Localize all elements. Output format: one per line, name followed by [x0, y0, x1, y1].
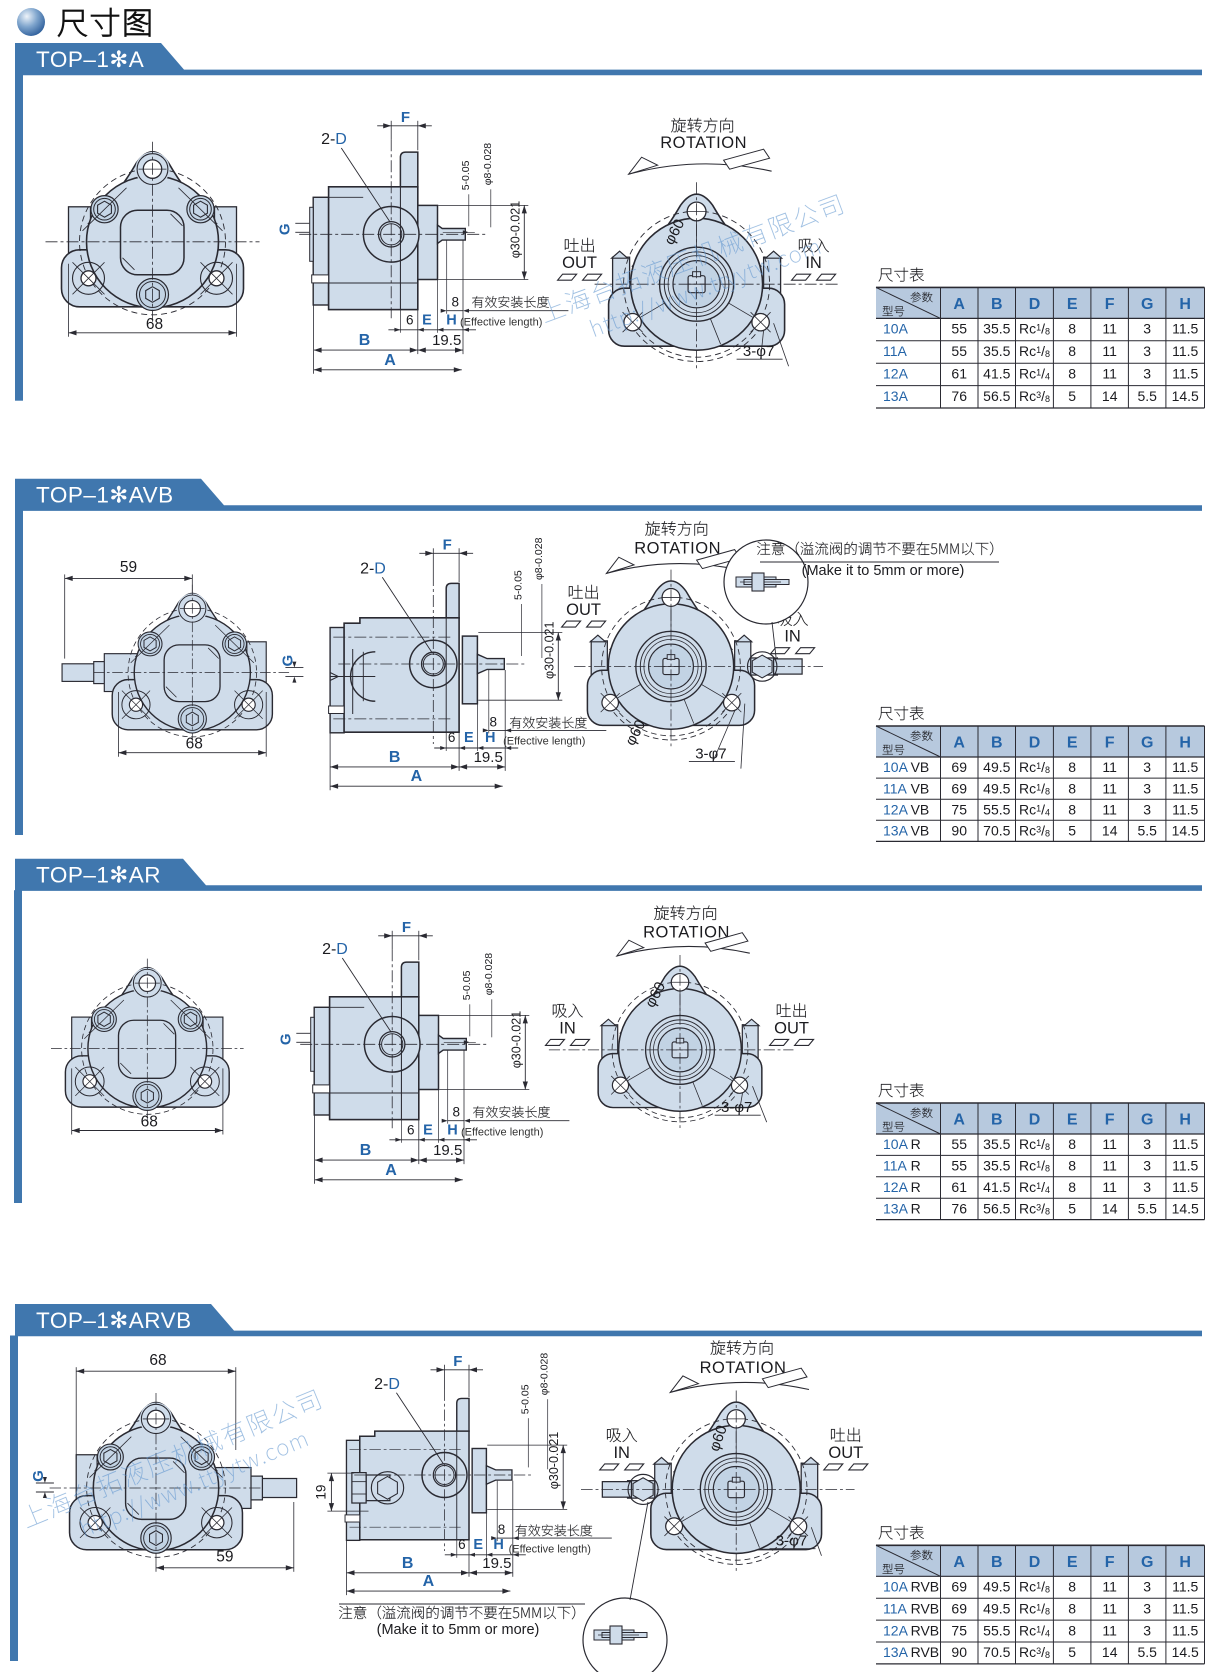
svg-text:3-φ7: 3-φ7 [743, 343, 774, 360]
svg-text:3: 3 [1143, 365, 1151, 381]
svg-text:ROTATION: ROTATION [643, 923, 730, 941]
svg-text:8: 8 [1068, 1600, 1076, 1616]
svg-text:70.5: 70.5 [983, 823, 1010, 839]
svg-text:A: A [953, 735, 965, 752]
svg-text:19.5: 19.5 [432, 332, 461, 349]
svg-text:D: D [1029, 1554, 1041, 1571]
svg-text:12A: 12A [883, 1179, 909, 1195]
svg-text:5.5: 5.5 [1137, 1644, 1157, 1660]
svg-text:2-: 2- [322, 941, 336, 958]
svg-text:76: 76 [951, 388, 967, 404]
svg-text:VB: VB [911, 823, 930, 839]
svg-text:6: 6 [458, 1537, 466, 1552]
svg-text:G: G [1141, 1554, 1153, 1571]
svg-text:Rc3/8: Rc3/8 [1019, 388, 1050, 404]
svg-text:φ8-0.028: φ8-0.028 [533, 537, 545, 580]
svg-text:6: 6 [407, 1122, 415, 1137]
svg-text:5-0.05: 5-0.05 [519, 1384, 531, 1414]
svg-text:Rc1/8: Rc1/8 [1019, 759, 1050, 775]
svg-text:14: 14 [1102, 1644, 1118, 1660]
svg-text:D: D [335, 131, 347, 148]
svg-text:(Effective length): (Effective length) [461, 1126, 543, 1138]
svg-text:12A: 12A [883, 801, 909, 817]
svg-text:5: 5 [1068, 1200, 1076, 1216]
svg-text:8: 8 [498, 1522, 506, 1537]
svg-text:11: 11 [1102, 343, 1117, 359]
svg-text:E: E [1067, 296, 1078, 313]
svg-text:35.5: 35.5 [983, 343, 1010, 359]
svg-text:55.5: 55.5 [983, 801, 1010, 817]
svg-text:H: H [447, 1122, 457, 1138]
svg-text:55: 55 [951, 1158, 967, 1174]
svg-text:11: 11 [1102, 1158, 1117, 1174]
svg-text:E: E [422, 312, 432, 328]
svg-text:OUT: OUT [774, 1019, 809, 1037]
svg-text:11.5: 11.5 [1172, 1622, 1198, 1638]
svg-text:68: 68 [149, 1352, 166, 1369]
svg-text:RVB: RVB [911, 1644, 940, 1660]
svg-text:5-0.05: 5-0.05 [513, 570, 525, 600]
svg-text:49.5: 49.5 [983, 759, 1010, 775]
svg-text:Rc1/8: Rc1/8 [1019, 343, 1050, 359]
svg-text:3-φ7: 3-φ7 [695, 746, 726, 763]
svg-text:61: 61 [951, 365, 967, 381]
svg-text:11A: 11A [883, 343, 908, 359]
svg-text:D: D [1029, 296, 1041, 313]
svg-text:OUT: OUT [828, 1444, 863, 1462]
svg-text:TOP–1✻A: TOP–1✻A [36, 47, 144, 72]
svg-text:10A: 10A [883, 321, 909, 337]
svg-text:F: F [402, 919, 411, 936]
svg-text:Rc1/4: Rc1/4 [1019, 801, 1050, 817]
svg-text:ROTATION: ROTATION [634, 540, 721, 558]
svg-text:(Make it to 5mm or more): (Make it to 5mm or more) [377, 1622, 540, 1638]
svg-text:11: 11 [1102, 1579, 1117, 1595]
svg-text:14.5: 14.5 [1172, 1644, 1199, 1660]
svg-text:(Make it to 5mm or more): (Make it to 5mm or more) [802, 563, 965, 579]
svg-text:B: B [991, 735, 1003, 752]
svg-text:ROTATION: ROTATION [700, 1359, 787, 1377]
svg-text:ROTATION: ROTATION [660, 134, 747, 152]
svg-text:2-: 2- [374, 1376, 388, 1393]
svg-text:70.5: 70.5 [983, 1644, 1010, 1660]
svg-text:IN: IN [805, 254, 822, 272]
svg-text:R: R [911, 1158, 921, 1174]
svg-text:R: R [911, 1200, 921, 1216]
svg-text:5-0.05: 5-0.05 [460, 160, 472, 190]
svg-text:14: 14 [1102, 388, 1118, 404]
svg-text:19.5: 19.5 [433, 1142, 462, 1159]
svg-text:11.5: 11.5 [1172, 1600, 1198, 1616]
svg-text:8: 8 [1068, 1136, 1076, 1152]
svg-text:TOP–1✻AR: TOP–1✻AR [36, 863, 161, 888]
svg-text:A: A [953, 1112, 965, 1129]
svg-text:OUT: OUT [562, 254, 597, 272]
svg-text:14: 14 [1102, 1200, 1118, 1216]
svg-text:Rc1/4: Rc1/4 [1019, 1622, 1050, 1638]
svg-text:H: H [1179, 296, 1191, 313]
svg-text:E: E [1067, 735, 1078, 752]
svg-text:55.5: 55.5 [983, 1622, 1010, 1638]
svg-text:11.5: 11.5 [1172, 1179, 1198, 1195]
svg-text:41.5: 41.5 [983, 1179, 1010, 1195]
svg-text:VB: VB [911, 801, 930, 817]
svg-text:B: B [402, 1555, 414, 1572]
svg-text:68: 68 [141, 1114, 158, 1131]
svg-text:D: D [1029, 735, 1041, 752]
svg-text:35.5: 35.5 [983, 1136, 1010, 1152]
svg-text:11.5: 11.5 [1172, 365, 1198, 381]
svg-text:Rc1/8: Rc1/8 [1019, 1600, 1050, 1616]
svg-text:11: 11 [1102, 1600, 1117, 1616]
svg-text:49.5: 49.5 [983, 780, 1010, 796]
svg-text:55: 55 [951, 321, 967, 337]
svg-text:3: 3 [1143, 1158, 1151, 1174]
svg-text:41.5: 41.5 [983, 365, 1010, 381]
svg-text:11: 11 [1102, 801, 1117, 817]
svg-text:B: B [389, 749, 401, 766]
svg-text:G: G [1141, 1112, 1153, 1129]
svg-text:φ30-0.021: φ30-0.021 [508, 201, 522, 259]
svg-text:56.5: 56.5 [983, 1200, 1010, 1216]
svg-text:3: 3 [1143, 1622, 1151, 1638]
svg-text:φ30-0.021: φ30-0.021 [542, 621, 556, 679]
svg-text:11.5: 11.5 [1172, 780, 1198, 796]
svg-text:2-: 2- [321, 131, 335, 148]
svg-text:E: E [1067, 1554, 1078, 1571]
svg-text:H: H [1179, 735, 1191, 752]
svg-text:35.5: 35.5 [983, 321, 1010, 337]
svg-text:10A: 10A [883, 1136, 909, 1152]
svg-text:5.5: 5.5 [1137, 388, 1157, 404]
svg-text:35.5: 35.5 [983, 1158, 1010, 1174]
svg-text:5: 5 [1068, 388, 1076, 404]
svg-text:φ8-0.028: φ8-0.028 [482, 143, 494, 186]
svg-text:Rc1/8: Rc1/8 [1019, 1579, 1050, 1595]
svg-text:IN: IN [559, 1019, 576, 1037]
svg-text:H: H [493, 1537, 503, 1553]
svg-text:Rc1/8: Rc1/8 [1019, 321, 1050, 337]
svg-text:11.5: 11.5 [1172, 1579, 1198, 1595]
svg-text:Rc1/4: Rc1/4 [1019, 365, 1050, 381]
svg-text:10A: 10A [883, 759, 909, 775]
svg-text:8: 8 [1068, 365, 1076, 381]
svg-text:TOP–1✻ARVB: TOP–1✻ARVB [36, 1308, 192, 1333]
svg-text:11.5: 11.5 [1172, 801, 1198, 817]
svg-text:G: G [276, 223, 293, 235]
svg-text:D: D [336, 941, 348, 958]
svg-text:A: A [423, 1573, 435, 1590]
svg-text:11.5: 11.5 [1172, 1136, 1198, 1152]
svg-text:8: 8 [1068, 1179, 1076, 1195]
svg-text:3: 3 [1143, 1136, 1151, 1152]
svg-text:55: 55 [951, 1136, 967, 1152]
svg-text:E: E [473, 1537, 483, 1553]
svg-text:G: G [1141, 735, 1153, 752]
svg-text:8: 8 [452, 1105, 460, 1120]
svg-text:8: 8 [1068, 780, 1076, 796]
svg-text:B: B [359, 332, 371, 349]
svg-text:RVB: RVB [911, 1622, 940, 1638]
svg-text:49.5: 49.5 [983, 1579, 1010, 1595]
svg-text:E: E [464, 730, 474, 746]
svg-text:69: 69 [951, 780, 967, 796]
svg-text:90: 90 [951, 1644, 967, 1660]
svg-text:11: 11 [1102, 759, 1117, 775]
svg-text:6: 6 [448, 730, 456, 745]
svg-text:14.5: 14.5 [1172, 388, 1199, 404]
svg-text:59: 59 [120, 559, 137, 576]
svg-text:H: H [485, 730, 495, 746]
svg-text:RVB: RVB [911, 1600, 940, 1616]
svg-text:F: F [443, 536, 452, 553]
svg-text:3: 3 [1143, 801, 1151, 817]
svg-text:B: B [991, 296, 1003, 313]
svg-text:8: 8 [1068, 321, 1076, 337]
svg-text:3: 3 [1143, 321, 1151, 337]
svg-text:D: D [1029, 1112, 1041, 1129]
svg-text:G: G [1141, 296, 1153, 313]
svg-text:11.5: 11.5 [1172, 321, 1198, 337]
svg-text:E: E [423, 1122, 433, 1138]
svg-text:14.5: 14.5 [1172, 823, 1199, 839]
svg-text:11: 11 [1102, 1179, 1117, 1195]
svg-text:68: 68 [146, 316, 163, 333]
svg-text:H: H [1179, 1112, 1191, 1129]
svg-text:IN: IN [613, 1444, 630, 1462]
svg-text:8: 8 [1068, 343, 1076, 359]
svg-text:IN: IN [784, 628, 801, 646]
svg-text:76: 76 [951, 1200, 967, 1216]
svg-text:14.5: 14.5 [1172, 1200, 1199, 1216]
svg-text:56.5: 56.5 [983, 388, 1010, 404]
svg-text:A: A [384, 352, 396, 369]
svg-text:2-: 2- [360, 560, 374, 577]
svg-text:D: D [374, 560, 386, 577]
svg-text:Rc1/8: Rc1/8 [1019, 1158, 1050, 1174]
svg-text:RVB: RVB [911, 1579, 940, 1595]
svg-text:φ8-0.028: φ8-0.028 [483, 953, 495, 996]
svg-text:11A: 11A [883, 1600, 908, 1616]
svg-text:11: 11 [1102, 780, 1117, 796]
svg-text:(Effective length): (Effective length) [509, 1543, 591, 1555]
svg-text:B: B [360, 1142, 372, 1159]
svg-text:75: 75 [951, 1622, 967, 1638]
svg-text:Rc3/8: Rc3/8 [1019, 1200, 1050, 1216]
svg-text:OUT: OUT [566, 601, 601, 619]
svg-text:E: E [1067, 1112, 1078, 1129]
svg-text:11A: 11A [883, 1158, 908, 1174]
svg-text:8: 8 [1068, 1579, 1076, 1595]
svg-text:5: 5 [1068, 823, 1076, 839]
svg-text:A: A [385, 1162, 397, 1179]
svg-text:59: 59 [216, 1548, 233, 1565]
svg-text:Rc1/8: Rc1/8 [1019, 1136, 1050, 1152]
svg-text:13A: 13A [883, 1644, 909, 1660]
svg-text:11.5: 11.5 [1172, 1158, 1198, 1174]
svg-text:8: 8 [1068, 801, 1076, 817]
svg-text:8: 8 [490, 714, 498, 729]
svg-text:11: 11 [1102, 1622, 1117, 1638]
svg-text:8: 8 [451, 295, 459, 310]
svg-text:B: B [991, 1112, 1003, 1129]
svg-text:8: 8 [1068, 1158, 1076, 1174]
svg-text:10A: 10A [883, 1579, 909, 1595]
svg-text:11A: 11A [883, 780, 908, 796]
svg-text:19: 19 [313, 1485, 328, 1500]
svg-text:13A: 13A [883, 1200, 909, 1216]
svg-text:Rc1/8: Rc1/8 [1019, 780, 1050, 796]
svg-text:11.5: 11.5 [1172, 759, 1198, 775]
svg-text:F: F [1105, 296, 1115, 313]
svg-text:3-φ7: 3-φ7 [776, 1533, 807, 1550]
svg-text:3: 3 [1143, 1600, 1151, 1616]
svg-text:90: 90 [951, 823, 967, 839]
svg-text:69: 69 [951, 1600, 967, 1616]
svg-text:Rc1/4: Rc1/4 [1019, 1179, 1050, 1195]
svg-text:(Effective length): (Effective length) [460, 316, 542, 328]
svg-text:13A: 13A [883, 823, 909, 839]
svg-text:φ8-0.028: φ8-0.028 [539, 1353, 551, 1396]
svg-text:F: F [401, 109, 410, 126]
svg-text:TOP–1✻AVB: TOP–1✻AVB [36, 483, 174, 508]
svg-text:φ30-0.021: φ30-0.021 [509, 1011, 523, 1069]
svg-text:11: 11 [1102, 1136, 1117, 1152]
svg-text:11: 11 [1102, 321, 1117, 337]
svg-text:Rc3/8: Rc3/8 [1019, 823, 1050, 839]
svg-text:B: B [991, 1554, 1003, 1571]
svg-text:3: 3 [1143, 1579, 1151, 1595]
svg-text:8: 8 [1068, 1622, 1076, 1638]
svg-text:3: 3 [1143, 343, 1151, 359]
svg-text:φ30-0.021: φ30-0.021 [547, 1432, 561, 1490]
svg-text:69: 69 [951, 759, 967, 775]
svg-text:11: 11 [1102, 365, 1117, 381]
svg-text:A: A [411, 768, 423, 785]
svg-text:Rc3/8: Rc3/8 [1019, 1644, 1050, 1660]
svg-text:D: D [388, 1376, 400, 1393]
svg-text:11.5: 11.5 [1172, 343, 1198, 359]
svg-text:12A: 12A [883, 1622, 909, 1638]
svg-text:F: F [1105, 735, 1115, 752]
svg-text:14: 14 [1102, 823, 1118, 839]
svg-text:5.5: 5.5 [1137, 1200, 1157, 1216]
svg-text:5-0.05: 5-0.05 [461, 970, 473, 1000]
svg-text:19.5: 19.5 [482, 1555, 511, 1572]
svg-text:3: 3 [1143, 780, 1151, 796]
svg-text:A: A [953, 296, 965, 313]
svg-text:R: R [911, 1179, 921, 1195]
svg-text:A: A [953, 1554, 965, 1571]
svg-text:(Effective length): (Effective length) [503, 736, 585, 748]
svg-text:VB: VB [911, 780, 930, 796]
svg-text:75: 75 [951, 801, 967, 817]
svg-text:69: 69 [951, 1579, 967, 1595]
svg-text:3: 3 [1143, 1179, 1151, 1195]
svg-text:55: 55 [951, 343, 967, 359]
svg-text:5: 5 [1068, 1644, 1076, 1660]
svg-text:F: F [453, 1353, 462, 1370]
svg-text:13A: 13A [883, 388, 909, 404]
svg-text:3-φ7: 3-φ7 [721, 1099, 752, 1116]
svg-text:68: 68 [186, 736, 203, 753]
svg-text:3: 3 [1143, 759, 1151, 775]
svg-text:VB: VB [911, 759, 930, 775]
svg-text:H: H [446, 312, 456, 328]
svg-text:R: R [911, 1136, 921, 1152]
svg-text:H: H [1179, 1554, 1191, 1571]
svg-text:6: 6 [406, 312, 414, 327]
svg-text:8: 8 [1068, 759, 1076, 775]
svg-text:19.5: 19.5 [474, 749, 503, 766]
svg-text:5.5: 5.5 [1137, 823, 1157, 839]
svg-text:F: F [1105, 1112, 1115, 1129]
svg-text:12A: 12A [883, 365, 909, 381]
svg-text:61: 61 [951, 1179, 967, 1195]
svg-text:49.5: 49.5 [983, 1600, 1010, 1616]
svg-text:F: F [1105, 1554, 1115, 1571]
svg-text:G: G [277, 1033, 294, 1045]
